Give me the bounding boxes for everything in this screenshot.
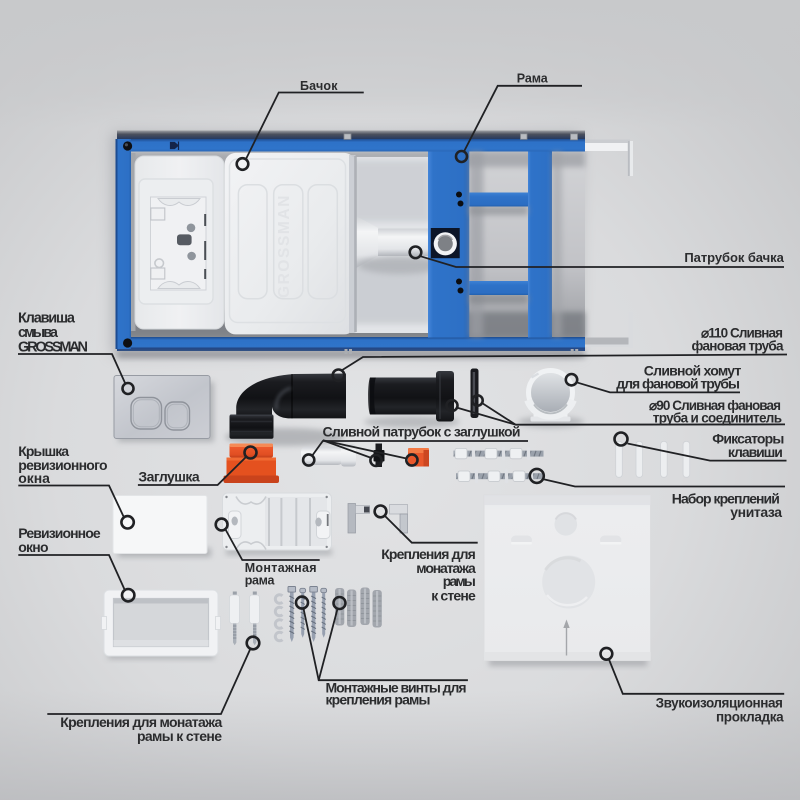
svg-text:Звукоизоляционная: Звукоизоляционная bbox=[656, 696, 783, 711]
svg-text:окна: окна bbox=[18, 470, 50, 486]
svg-text:Бачок: Бачок bbox=[300, 79, 338, 93]
svg-text:рама: рама bbox=[245, 574, 276, 588]
svg-text:крепления рамы: крепления рамы bbox=[326, 692, 431, 708]
svg-text:клавиши: клавиши bbox=[728, 444, 783, 460]
svg-text:рамы к стене: рамы к стене bbox=[137, 728, 222, 744]
svg-text:GROSSMAN: GROSSMAN bbox=[18, 339, 88, 355]
svg-text:прокладка: прокладка bbox=[716, 709, 784, 724]
svg-text:унитаза: унитаза bbox=[730, 504, 782, 520]
svg-text:Рама: Рама bbox=[517, 71, 549, 85]
svg-text:труба и соединитель: труба и соединитель bbox=[653, 410, 782, 425]
svg-text:для фановой трубы: для фановой трубы bbox=[616, 376, 740, 392]
svg-text:Сливной патрубок с заглушкой: Сливной патрубок с заглушкой bbox=[323, 424, 521, 440]
svg-text:окно: окно bbox=[18, 539, 48, 555]
svg-text:GROSSMAN: GROSSMAN bbox=[276, 194, 293, 298]
svg-text:Заглушка: Заглушка bbox=[138, 469, 200, 485]
svg-text:фановая труба: фановая труба bbox=[692, 339, 784, 354]
svg-text:Патрубок бачка: Патрубок бачка bbox=[684, 250, 784, 265]
svg-text:к стене: к стене bbox=[431, 587, 476, 603]
